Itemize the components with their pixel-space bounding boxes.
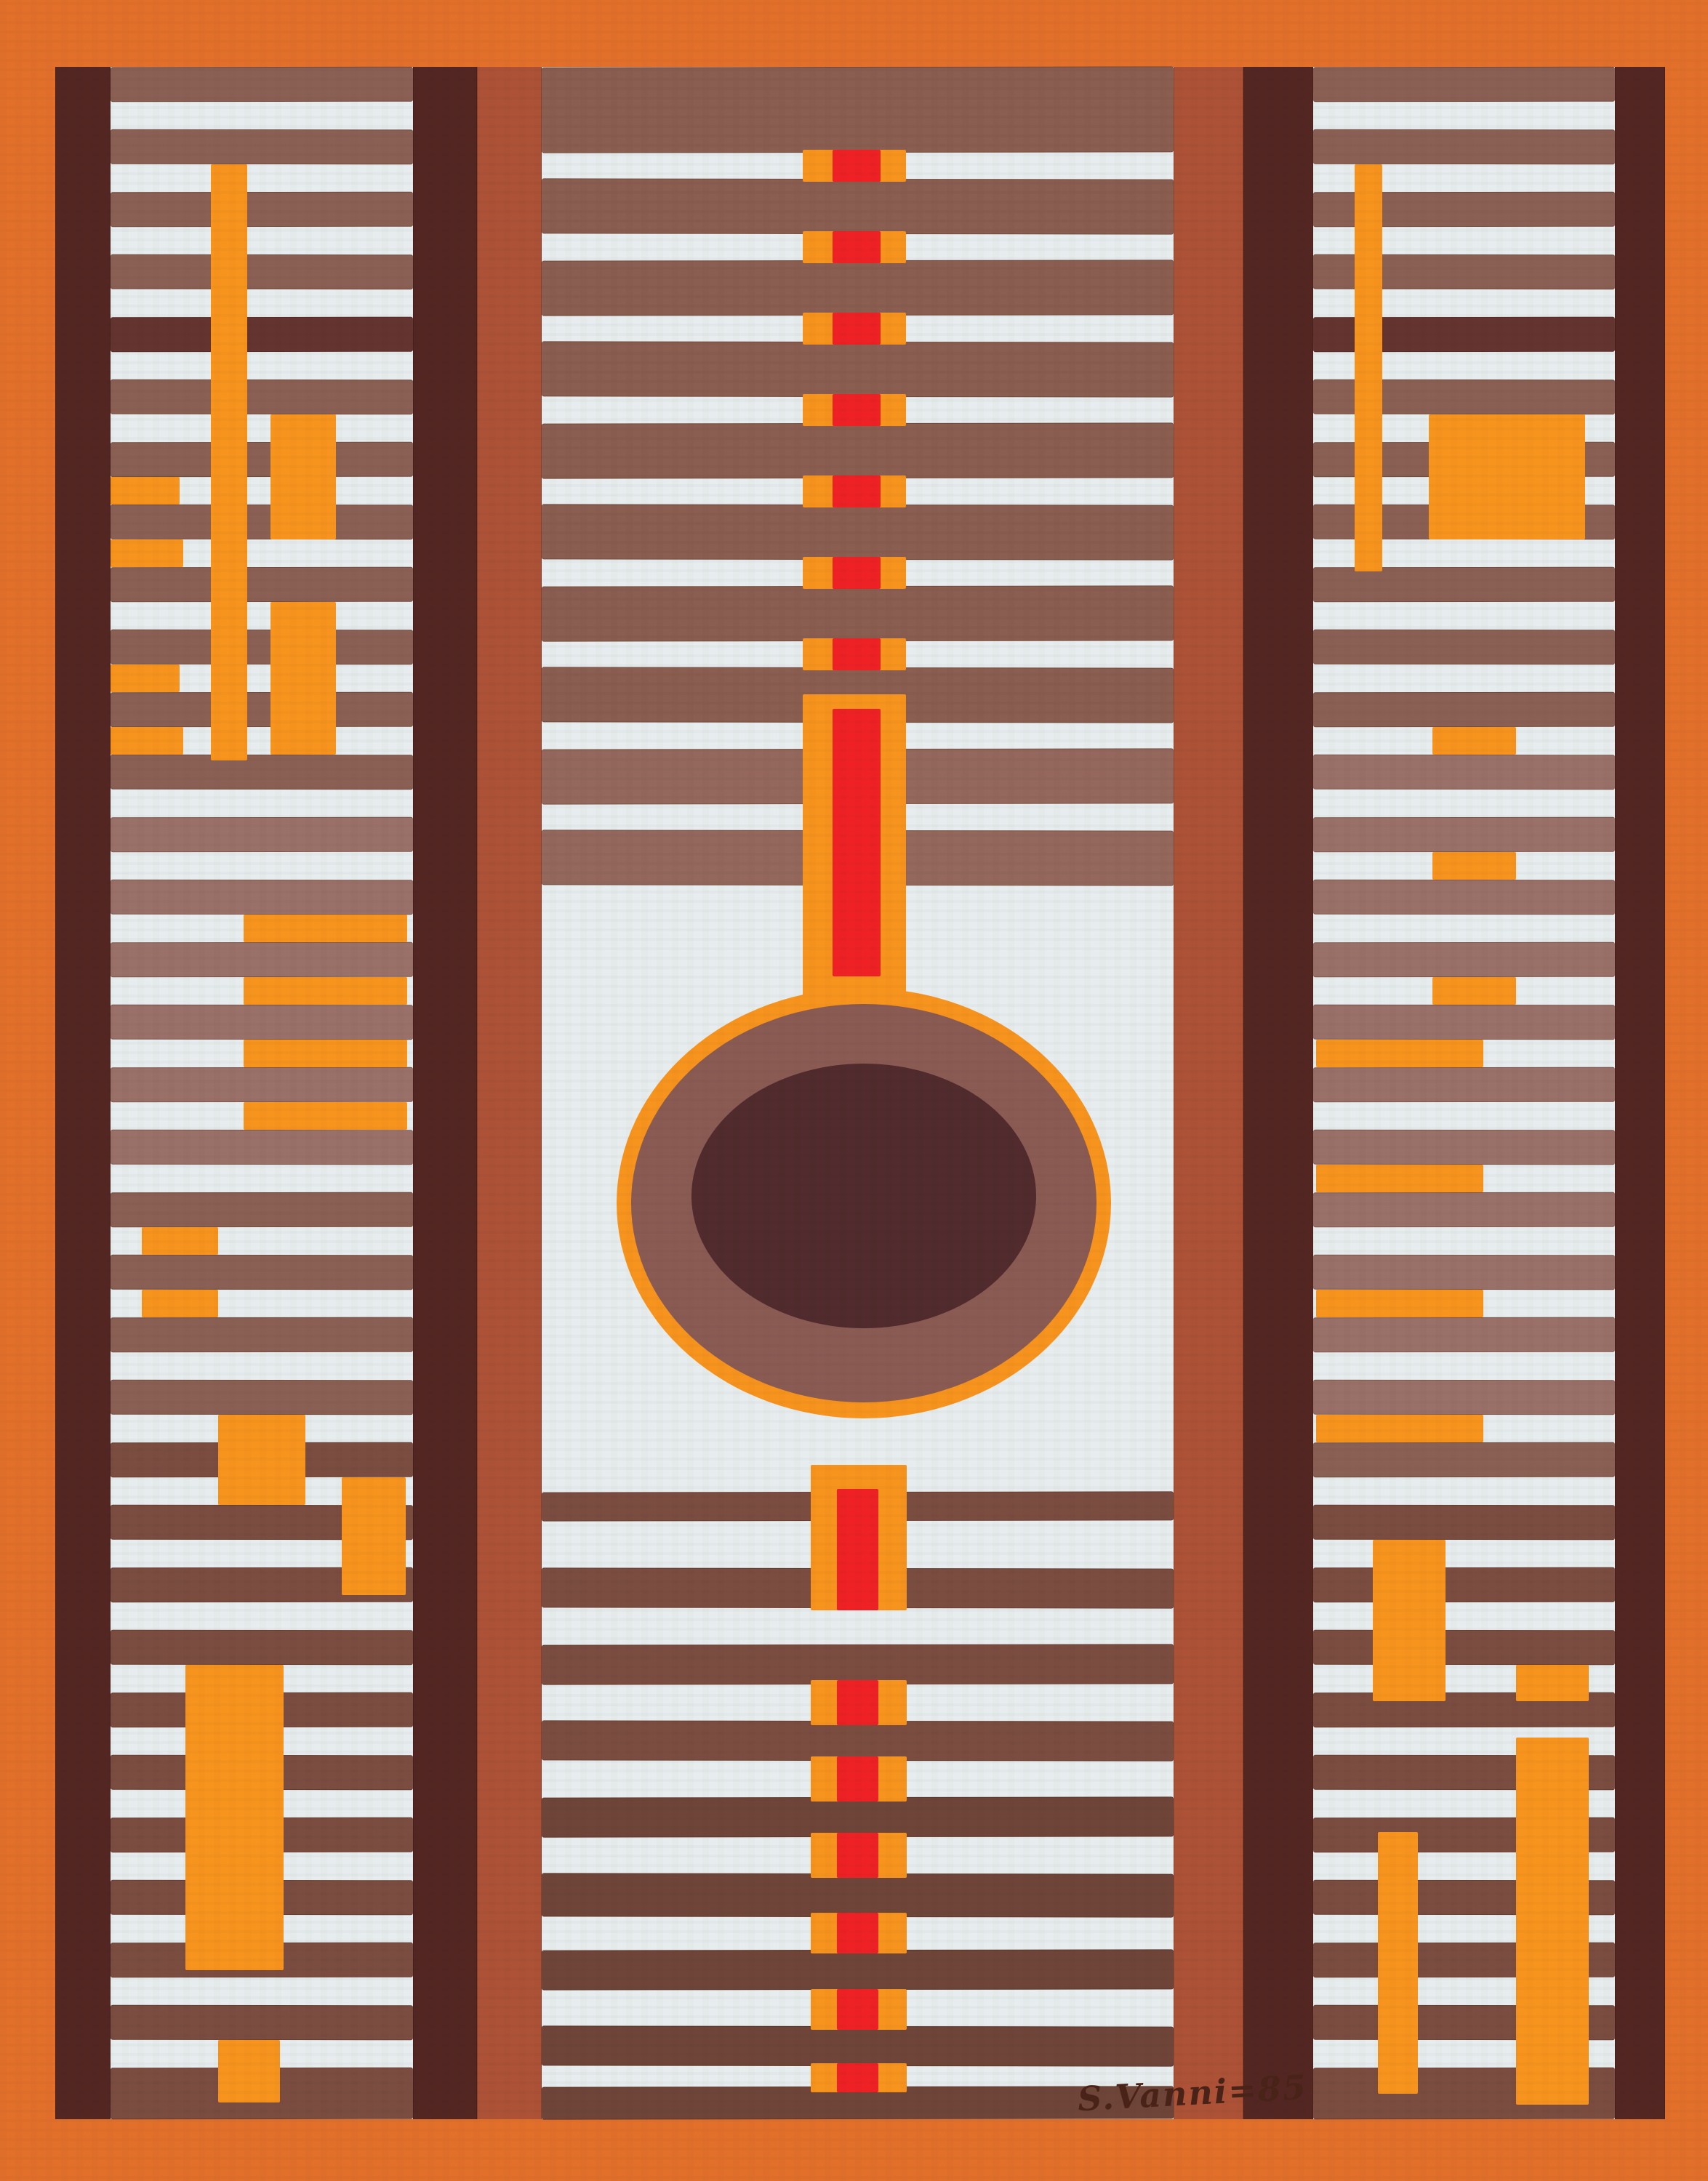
stripe-row-right-11	[1313, 755, 1615, 790]
stripe-row-left-7	[111, 505, 413, 540]
stripe-row-right-22	[1313, 1442, 1615, 1478]
accent-orange-left-1	[270, 414, 336, 539]
stripe-row-left-8	[111, 567, 413, 603]
stripe-row-middle-3	[542, 341, 1174, 397]
accent-orange-right-6	[1316, 1165, 1483, 1192]
accent-orange-left-2	[270, 602, 336, 755]
stripe-row-left-12	[111, 817, 413, 853]
accent-red-middle-13	[833, 638, 881, 670]
stripe-row-middle-15	[542, 1873, 1174, 1917]
accent-orange-left-9	[244, 1040, 407, 1067]
accent-orange-right-4	[1432, 977, 1516, 1005]
stripe-row-middle-5	[542, 504, 1174, 560]
accent-orange-left-0	[211, 164, 247, 760]
stripe-row-right-10	[1313, 692, 1615, 728]
stripe-row-middle-6	[542, 585, 1174, 641]
accent-orange-left-6	[111, 727, 183, 755]
stripe-row-left-0	[111, 67, 413, 103]
accent-orange-left-10	[244, 1102, 407, 1130]
accent-orange-right-12	[1378, 1832, 1418, 2094]
accent-red-middle-27	[837, 1989, 878, 2030]
stripe-row-left-19	[111, 1255, 413, 1290]
stripe-row-right-16	[1313, 1067, 1615, 1103]
stripe-row-left-16	[111, 1067, 413, 1103]
accent-orange-left-7	[244, 915, 407, 942]
accent-orange-left-4	[111, 539, 183, 567]
stripe-row-left-15	[111, 1005, 413, 1040]
stripe-row-left-1	[111, 129, 413, 165]
stripe-row-right-15	[1313, 1005, 1615, 1040]
stripe-row-middle-4	[542, 422, 1174, 478]
stripe-row-left-31	[111, 2005, 413, 2041]
stripe-row-right-19	[1313, 1255, 1615, 1290]
accent-orange-left-11	[142, 1227, 218, 1255]
stripe-row-right-24	[1313, 1567, 1615, 1603]
stripe-row-right-21	[1313, 1380, 1615, 1415]
painting-canvas: S.Vanni=85	[0, 0, 1708, 2181]
stripe-row-left-3	[111, 254, 413, 290]
stripe-row-left-18	[111, 1192, 413, 1228]
vertical-bar-1	[55, 67, 111, 2119]
stripe-row-middle-13	[542, 1720, 1174, 1761]
stripe-row-left-4	[111, 317, 413, 353]
accent-orange-right-3	[1432, 852, 1516, 880]
vertical-bar-6	[1615, 67, 1665, 2119]
accent-red-middle-5	[833, 313, 881, 345]
stripe-row-left-5	[111, 379, 413, 415]
accent-orange-left-8	[244, 977, 407, 1005]
accent-red-middle-29	[837, 2063, 878, 2092]
accent-orange-right-1	[1429, 414, 1585, 539]
accent-orange-right-9	[1373, 1540, 1446, 1701]
accent-red-middle-7	[833, 394, 881, 426]
stripe-row-right-20	[1313, 1317, 1615, 1353]
stripe-row-left-2	[111, 192, 413, 228]
stripe-row-right-12	[1313, 817, 1615, 853]
accent-orange-left-15	[185, 1665, 284, 1970]
vertical-bar-2	[413, 67, 477, 2119]
accent-red-middle-21	[837, 1756, 878, 1802]
stripe-row-left-20	[111, 1317, 413, 1353]
stripe-row-right-18	[1313, 1192, 1615, 1228]
accent-red-middle-17	[837, 1489, 878, 1610]
accent-red-middle-19	[837, 1680, 878, 1725]
stripe-row-left-17	[111, 1130, 413, 1165]
accent-red-middle-3	[833, 231, 881, 263]
accent-orange-right-2	[1432, 727, 1516, 755]
stripe-row-right-0	[1313, 67, 1615, 103]
stripe-row-middle-1	[542, 178, 1174, 234]
stripe-row-right-1	[1313, 129, 1615, 165]
accent-orange-left-3	[111, 477, 180, 505]
accent-red-middle-15	[833, 709, 881, 976]
accent-red-middle-25	[837, 1913, 878, 1953]
stripe-row-middle-12	[542, 1644, 1174, 1684]
accent-orange-left-16	[218, 2040, 280, 2102]
accent-red-middle-23	[837, 1833, 878, 1878]
stripe-row-right-23	[1313, 1505, 1615, 1541]
accent-orange-right-10	[1516, 1665, 1589, 1701]
stripe-row-middle-17	[542, 2025, 1174, 2066]
accent-orange-left-13	[218, 1415, 305, 1505]
vertical-bar-5	[1243, 67, 1313, 2119]
stripe-row-left-14	[111, 942, 413, 978]
stripe-row-left-21	[111, 1380, 413, 1415]
center-oval-layer-3	[691, 1064, 1036, 1328]
stripe-row-middle-14	[542, 1796, 1174, 1837]
accent-red-middle-1	[833, 150, 881, 182]
stripe-row-right-13	[1313, 880, 1615, 915]
accent-red-middle-9	[833, 475, 881, 507]
vertical-bar-3	[477, 67, 542, 2119]
stripe-row-middle-2	[542, 260, 1174, 316]
accent-orange-right-8	[1316, 1415, 1483, 1442]
stripe-row-left-25	[111, 1630, 413, 1666]
stripe-row-left-11	[111, 755, 413, 790]
accent-orange-left-12	[142, 1290, 218, 1317]
accent-orange-right-0	[1355, 164, 1382, 571]
stripe-row-left-9	[111, 630, 413, 665]
accent-orange-right-5	[1316, 1040, 1483, 1067]
stripe-row-right-14	[1313, 942, 1615, 978]
accent-orange-left-14	[342, 1477, 406, 1595]
stripe-row-right-17	[1313, 1130, 1615, 1165]
stripe-row-middle-0	[542, 66, 1174, 153]
stripe-row-left-6	[111, 442, 413, 478]
accent-orange-left-5	[111, 664, 180, 692]
stripe-row-left-13	[111, 880, 413, 915]
stripe-row-right-25	[1313, 1630, 1615, 1666]
stripe-row-middle-16	[542, 1949, 1174, 1990]
accent-red-middle-11	[833, 557, 881, 589]
stripe-row-left-10	[111, 692, 413, 728]
accent-orange-right-7	[1316, 1290, 1483, 1317]
vertical-bar-4	[1174, 67, 1243, 2119]
stripe-row-right-8	[1313, 567, 1615, 603]
accent-orange-right-11	[1516, 1738, 1589, 2105]
stripe-row-right-9	[1313, 630, 1615, 665]
